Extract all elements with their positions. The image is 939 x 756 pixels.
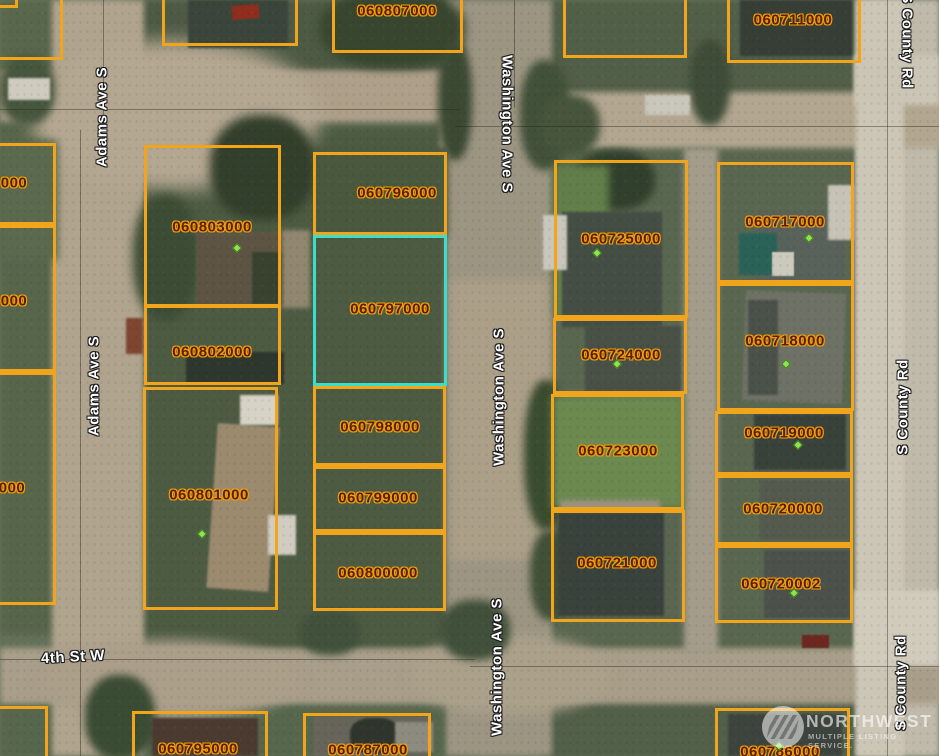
street-name-label: Washington Ave S [491,328,508,466]
street-name-label: Washington Ave S [489,598,506,736]
street-name-label: Adams Ave S [94,67,111,167]
aerial-parcel-map[interactable]: 0608070000607110000000000000608030000608… [0,0,939,756]
street-labels: Adams Ave SAdams Ave SWashington Ave SWa… [0,0,939,756]
street-name-label: Washington Ave S [499,55,516,193]
street-name-label: 4th St W [41,647,106,667]
street-name-label: S County Rd [899,0,916,89]
street-name-label: S County Rd [893,635,910,731]
street-name-label: S County Rd [895,359,912,455]
street-name-label: Adams Ave S [86,336,103,436]
